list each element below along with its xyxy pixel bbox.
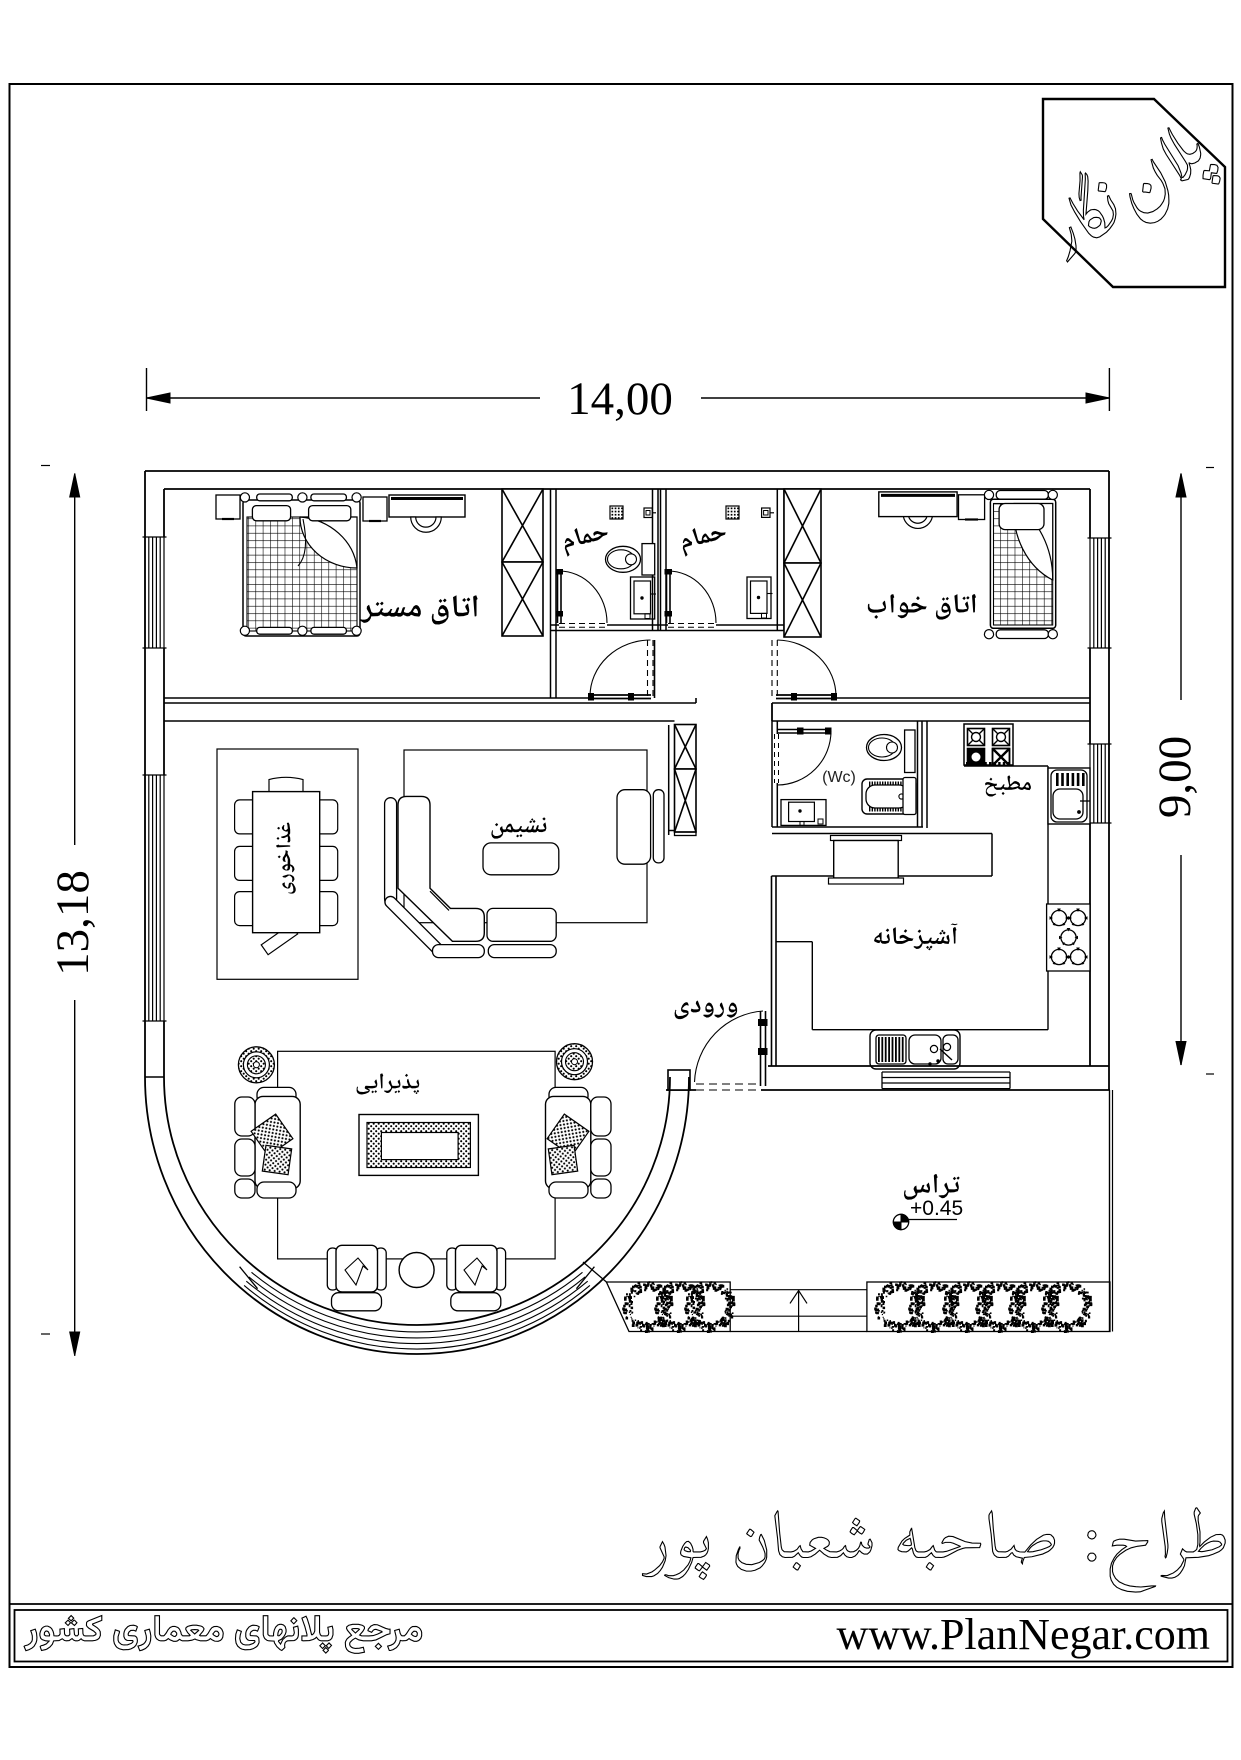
svg-text:+0.45: +0.45 (910, 1197, 963, 1220)
svg-text:www.PlanNegar.com: www.PlanNegar.com (836, 1610, 1210, 1659)
svg-text:(Wc): (Wc) (822, 769, 856, 786)
svg-text:13,18: 13,18 (47, 870, 99, 976)
svg-text:14,00: 14,00 (567, 373, 673, 425)
svg-text:9,00: 9,00 (1149, 736, 1201, 818)
